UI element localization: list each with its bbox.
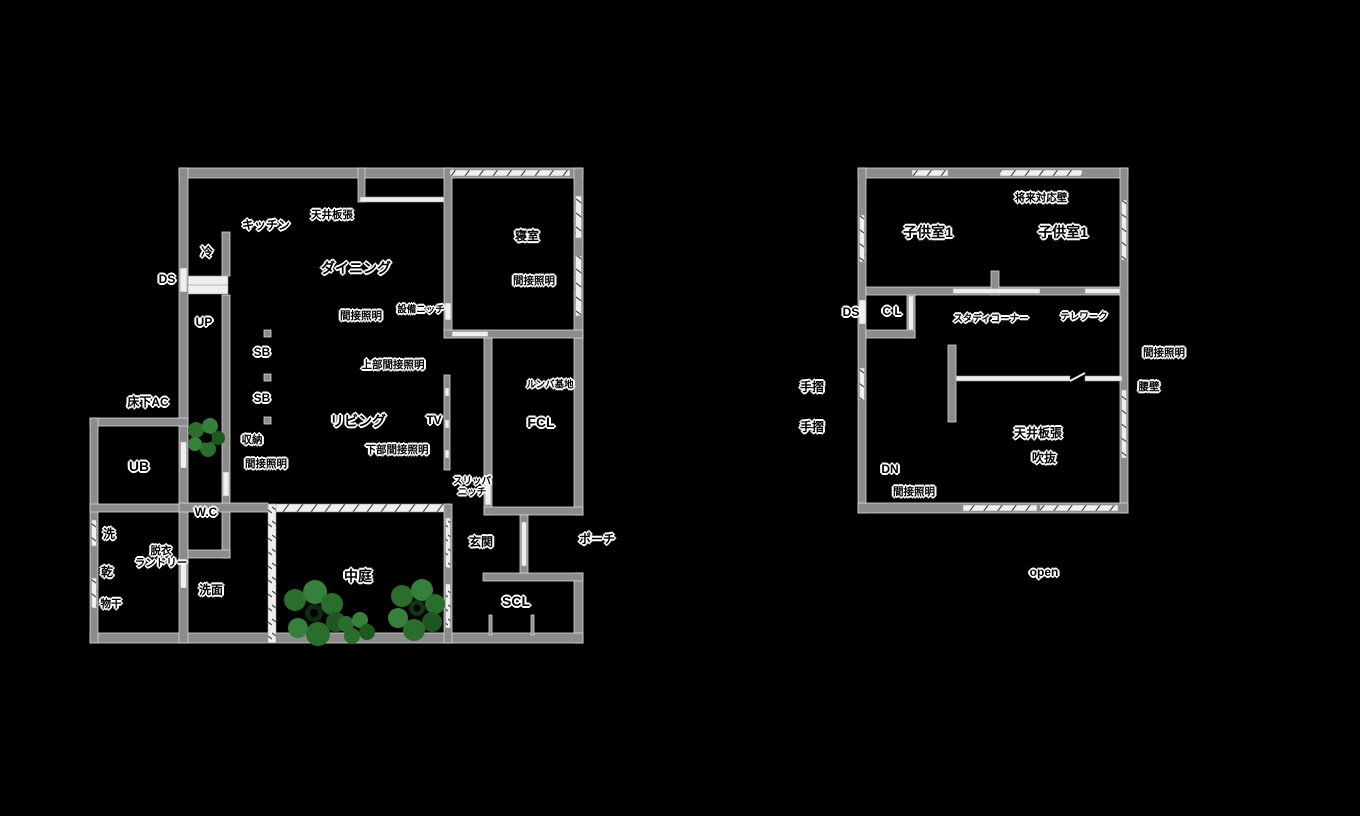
label-layer: DS冷キッチン天井板張ダイニング間接照明設備ニッチUPSBSB上部間接照明床下A… bbox=[0, 0, 1360, 816]
label-floor2-handrail-2: 手摺 bbox=[800, 421, 824, 435]
label-floor1-tv: TV bbox=[426, 414, 441, 428]
label-floor1-courtyard: 中庭 bbox=[344, 568, 372, 584]
label-floor1-kitchen: キッチン bbox=[242, 219, 290, 233]
label-floor1-scl: SCL bbox=[502, 593, 530, 609]
label-floor1-wc: W.C bbox=[195, 506, 218, 520]
label-floor1-living: リビング bbox=[330, 413, 386, 429]
label-floor1-ub: UB bbox=[129, 458, 149, 474]
label-floor1-storage: 収納 bbox=[242, 434, 263, 446]
label-floor2-indirect-right: 間接照明 bbox=[1143, 347, 1185, 359]
label-floor1-washer: 洗 bbox=[103, 528, 115, 542]
label-floor1-indirect-storage: 間接照明 bbox=[245, 458, 287, 470]
label-floor1-ceiling-board: 天井板張 bbox=[311, 209, 353, 221]
label-floor2-open: open bbox=[1030, 566, 1059, 580]
label-floor1-upper-indirect: 上部間接照明 bbox=[362, 359, 425, 371]
label-floor2-study-corner: スタディコーナー bbox=[953, 315, 1028, 326]
label-floor1-drying-pole: 物干 bbox=[101, 598, 122, 610]
label-floor1-bedroom: 寝室 bbox=[515, 230, 539, 244]
label-floor1-up: UP bbox=[196, 316, 213, 330]
label-floor1-laundry: 脱衣 ランドリー bbox=[135, 545, 188, 569]
label-floor1-ds: DS bbox=[159, 273, 176, 287]
label-floor1-equipment-niche: 設備ニッチ bbox=[397, 306, 445, 317]
label-floor1-dining: ダイニング bbox=[321, 260, 391, 276]
label-floor1-genkan: 玄関 bbox=[469, 536, 493, 550]
label-floor1-indirect-dining: 間接照明 bbox=[340, 310, 382, 322]
label-floor1-fridge: 冷 bbox=[201, 246, 213, 260]
label-floor2-cl: C L bbox=[882, 305, 901, 319]
label-floor1-washroom: 洗面 bbox=[199, 584, 223, 598]
label-floor1-slipper-niche: スリッパ ニッチ bbox=[453, 477, 491, 499]
label-floor2-telework: テレワーク bbox=[1060, 313, 1108, 324]
label-floor1-dryer: 乾 bbox=[101, 566, 113, 580]
label-floor2-ceiling-board: 天井板張 bbox=[1014, 427, 1062, 441]
label-floor2-void: 吹抜 bbox=[1032, 452, 1056, 466]
label-floor1-underfloor-ac: 床下AC bbox=[127, 396, 168, 410]
label-floor2-indirect-stairs: 間接照明 bbox=[893, 486, 935, 498]
floor-plan-canvas: DS冷キッチン天井板張ダイニング間接照明設備ニッチUPSBSB上部間接照明床下A… bbox=[0, 0, 1360, 816]
label-floor1-sb-2: SB bbox=[254, 392, 271, 406]
label-floor2-kids-room-1: 子供室1 bbox=[903, 224, 953, 240]
label-floor1-indirect-bedroom: 間接照明 bbox=[513, 275, 555, 287]
label-floor1-sb-1: SB bbox=[254, 346, 271, 360]
label-floor2-future-wall: 将来対応壁 bbox=[1015, 192, 1068, 204]
label-floor2-half-wall: 腰壁 bbox=[1139, 381, 1160, 393]
label-floor2-handrail-1: 手摺 bbox=[800, 381, 824, 395]
label-floor1-porch: ポーチ bbox=[579, 533, 615, 547]
label-floor1-fcl: FCL bbox=[527, 414, 554, 430]
label-floor2-dn: DN bbox=[881, 463, 898, 477]
label-floor2-kids-room-2: 子供室1 bbox=[1038, 224, 1088, 240]
label-floor1-roomba-base: ルンバ基地 bbox=[526, 381, 573, 392]
label-floor1-lower-indirect: 下部間接照明 bbox=[366, 444, 429, 456]
label-floor2-ds: DS bbox=[843, 306, 860, 320]
